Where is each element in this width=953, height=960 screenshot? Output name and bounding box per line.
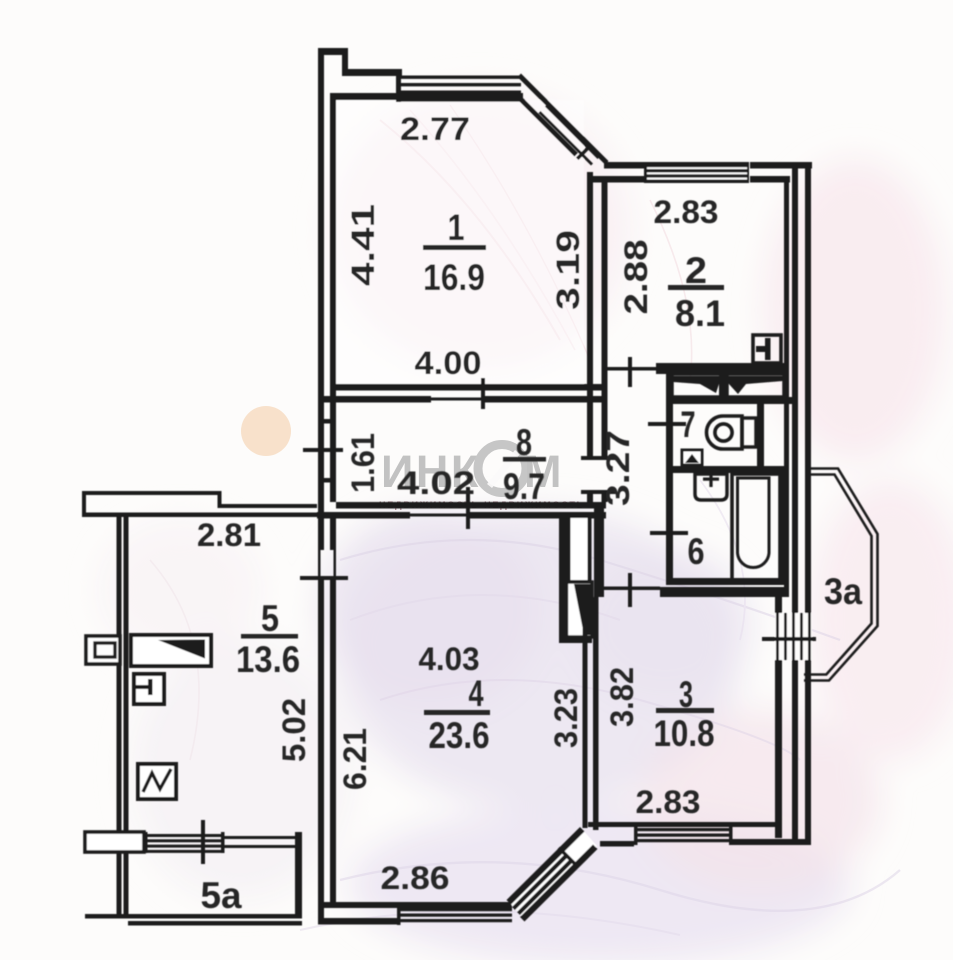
svg-text:3.19: 3.19: [550, 230, 586, 310]
svg-text:7: 7: [681, 404, 696, 445]
svg-text:1.61: 1.61: [345, 433, 381, 493]
svg-text:8: 8: [516, 422, 532, 463]
svg-text:3.82: 3.82: [604, 667, 640, 727]
svg-text:2.81: 2.81: [197, 517, 261, 553]
svg-text:9.7: 9.7: [503, 466, 545, 507]
svg-text:5а: 5а: [201, 875, 242, 916]
svg-text:4.03: 4.03: [419, 641, 480, 677]
svg-text:8.1: 8.1: [675, 293, 725, 334]
svg-text:2.86: 2.86: [381, 860, 450, 896]
svg-text:13.6: 13.6: [236, 639, 300, 680]
svg-text:2.77: 2.77: [400, 111, 470, 147]
svg-text:4.41: 4.41: [345, 204, 381, 286]
svg-text:10.8: 10.8: [654, 713, 715, 754]
svg-text:4: 4: [469, 673, 484, 714]
svg-text:5.02: 5.02: [276, 698, 312, 762]
svg-text:4.00: 4.00: [415, 345, 482, 381]
svg-text:16.9: 16.9: [423, 257, 485, 298]
svg-text:3.23: 3.23: [548, 688, 584, 748]
svg-text:5: 5: [261, 598, 279, 639]
svg-text:2.83: 2.83: [654, 194, 719, 230]
svg-text:23.6: 23.6: [429, 715, 490, 756]
svg-text:3а: 3а: [824, 571, 862, 612]
svg-text:1: 1: [448, 207, 465, 248]
svg-text:6: 6: [688, 531, 705, 572]
svg-text:2.83: 2.83: [636, 784, 701, 820]
svg-text:4.02: 4.02: [397, 465, 475, 501]
svg-text:6.21: 6.21: [337, 728, 373, 790]
svg-text:3.27: 3.27: [600, 430, 636, 506]
svg-text:2: 2: [685, 250, 707, 291]
svg-text:2.88: 2.88: [618, 240, 654, 315]
